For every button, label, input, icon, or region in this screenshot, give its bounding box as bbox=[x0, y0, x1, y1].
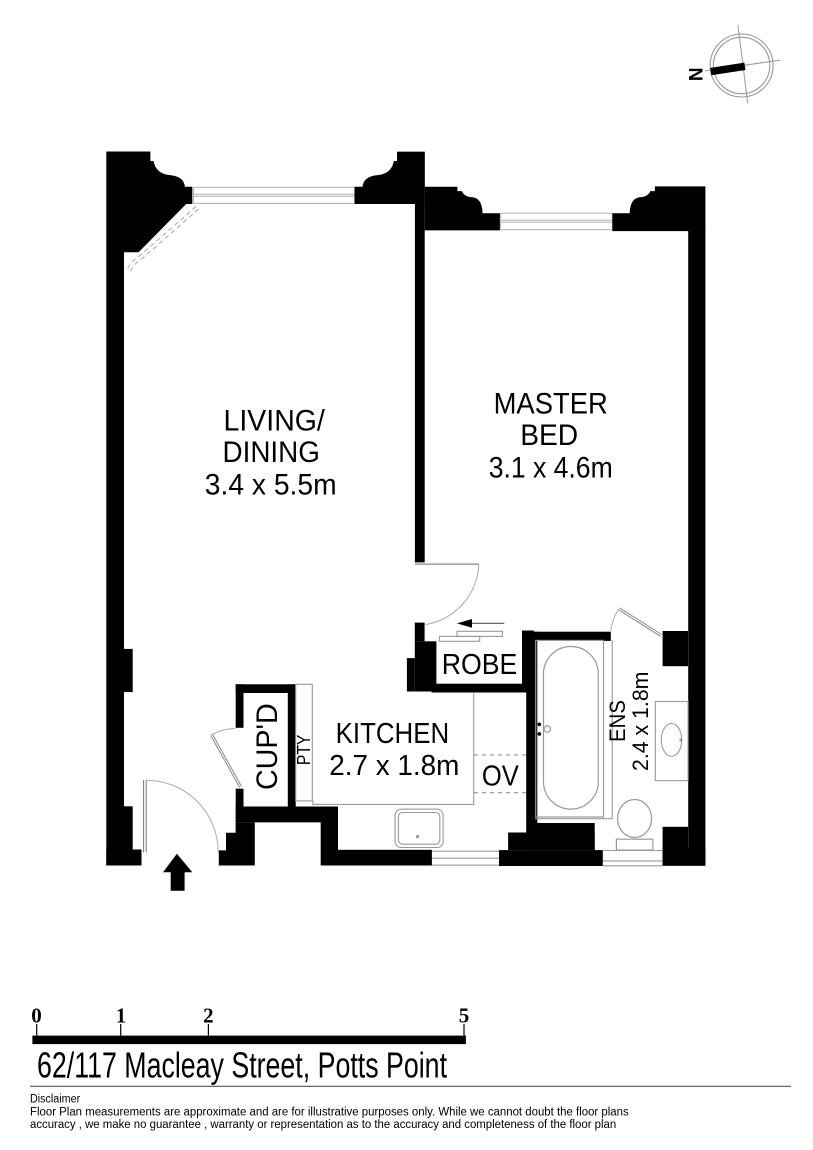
svg-text:Floor Plan measurements are ap: Floor Plan measurements are approximate … bbox=[30, 1106, 629, 1118]
svg-text:ROBE: ROBE bbox=[442, 649, 518, 681]
svg-text:PTY: PTY bbox=[294, 735, 314, 765]
svg-text:LIVING/: LIVING/ bbox=[224, 404, 326, 437]
svg-text:DINING: DINING bbox=[223, 436, 320, 469]
svg-text:2.7 x 1.8m: 2.7 x 1.8m bbox=[329, 750, 459, 782]
svg-text:KITCHEN: KITCHEN bbox=[336, 718, 450, 750]
svg-text:MASTER: MASTER bbox=[494, 388, 608, 421]
svg-text:CUP'D: CUP'D bbox=[251, 703, 284, 790]
svg-text:OV: OV bbox=[482, 760, 519, 792]
svg-text:2.4 x 1.8m: 2.4 x 1.8m bbox=[628, 672, 653, 771]
svg-text:Disclaimer: Disclaimer bbox=[30, 1094, 80, 1106]
svg-text:accuracy , we make no guarante: accuracy , we make no guarantee , warran… bbox=[30, 1119, 616, 1131]
svg-text:BED: BED bbox=[520, 419, 578, 452]
svg-text:3.1 x 4.6m: 3.1 x 4.6m bbox=[489, 451, 613, 484]
svg-text:3.4 x 5.5m: 3.4 x 5.5m bbox=[205, 468, 337, 501]
svg-text:62/117 Macleay Street, Potts P: 62/117 Macleay Street, Potts Point bbox=[37, 1044, 447, 1085]
svg-text:ENS: ENS bbox=[605, 700, 630, 742]
svg-text:N: N bbox=[687, 67, 708, 81]
